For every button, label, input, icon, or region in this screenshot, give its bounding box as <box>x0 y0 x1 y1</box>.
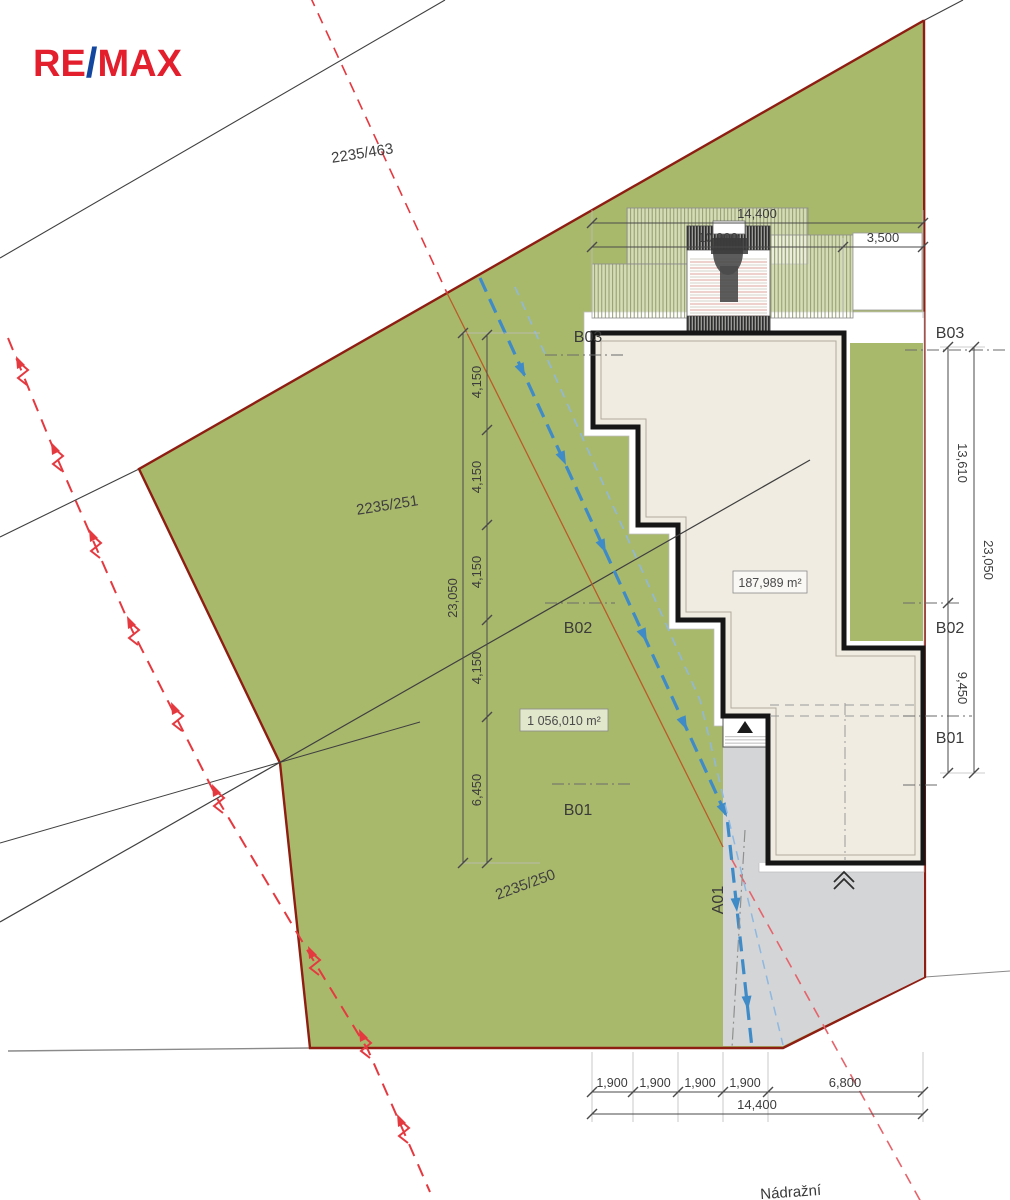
marker-a01: A01 <box>710 886 727 915</box>
garden-strip-east <box>850 343 923 641</box>
remax-logo-slash-icon: / <box>86 39 98 86</box>
remax-logo-max: MAX <box>97 43 181 85</box>
dim-left-seg5: 6,450 <box>469 774 484 807</box>
remax-logo-re: RE <box>33 43 86 85</box>
cadastral-line-west <box>0 469 139 537</box>
dim-right-seg1: 13,610 <box>955 443 970 483</box>
cadastral-line-south <box>8 1048 310 1051</box>
dim-bottom-seg1: 1,900 <box>596 1076 627 1090</box>
dim-left-seg3: 4,150 <box>469 556 484 589</box>
marker-b02-right: B02 <box>936 620 965 637</box>
marker-b02-left: B02 <box>564 620 593 637</box>
street-name-label: Nádražní <box>760 1182 823 1200</box>
entrance-hatch <box>725 736 766 746</box>
cadastral-line-southeast <box>925 971 1010 977</box>
marker-b01-left: B01 <box>564 802 593 819</box>
dim-right-total: 23,050 <box>981 540 996 580</box>
marker-b03-right: B03 <box>936 325 965 342</box>
building-area-label: 187,989 m² <box>733 571 807 593</box>
pergola-hatch-left <box>592 264 688 318</box>
tree-trunk <box>720 266 738 302</box>
dim-bottom-seg4: 1,900 <box>729 1076 760 1090</box>
dim-bottom-seg3: 1,900 <box>684 1076 715 1090</box>
building-area-value: 187,989 m² <box>738 576 801 590</box>
dim-left-seg2: 4,150 <box>469 461 484 494</box>
dim-bottom-seg2: 1,900 <box>639 1076 670 1090</box>
dim-left-seg4: 4,150 <box>469 652 484 685</box>
marker-b03-left: B03 <box>574 329 603 346</box>
dim-bottom-seg5: 6,800 <box>829 1075 862 1090</box>
dim-top-a: 10,900 <box>698 230 738 245</box>
site-plan-svg: 14,400 10,900 3,500 23,050 4,150 4,150 4… <box>0 0 1010 1200</box>
marker-b01-right: B01 <box>936 730 965 747</box>
dim-right-seg2: 9,450 <box>955 672 970 705</box>
remax-logo: RE/MAX <box>33 38 182 86</box>
dim-left-total: 23,050 <box>445 578 460 618</box>
site-plan-page: 14,400 10,900 3,500 23,050 4,150 4,150 4… <box>0 0 1010 1200</box>
parcel-label-upper: 2235/463 <box>330 140 394 167</box>
cadastral-line-northeast-stub <box>923 0 963 21</box>
plot-area-label: 1 056,010 m² <box>520 709 608 731</box>
plot-area-value: 1 056,010 m² <box>527 714 601 728</box>
dim-bottom-total: 14,400 <box>737 1097 777 1112</box>
stair-dark-band-bottom <box>687 316 770 333</box>
dim-left-seg1: 4,150 <box>469 366 484 399</box>
entrance-marker <box>723 717 768 747</box>
dim-top-total: 14,400 <box>737 206 777 221</box>
dim-top-b: 3,500 <box>867 230 900 245</box>
